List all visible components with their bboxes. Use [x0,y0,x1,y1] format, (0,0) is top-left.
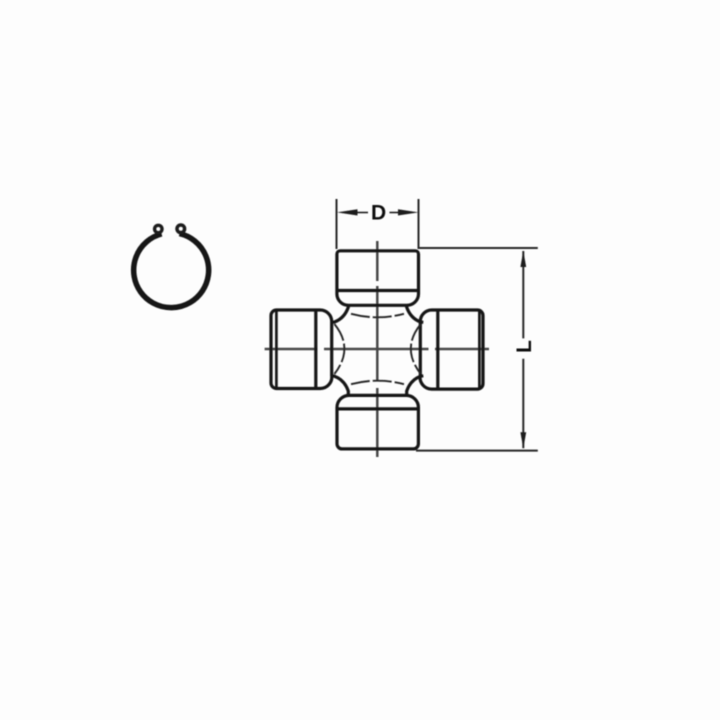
svg-text:L: L [513,340,536,353]
svg-text:D: D [371,201,386,224]
